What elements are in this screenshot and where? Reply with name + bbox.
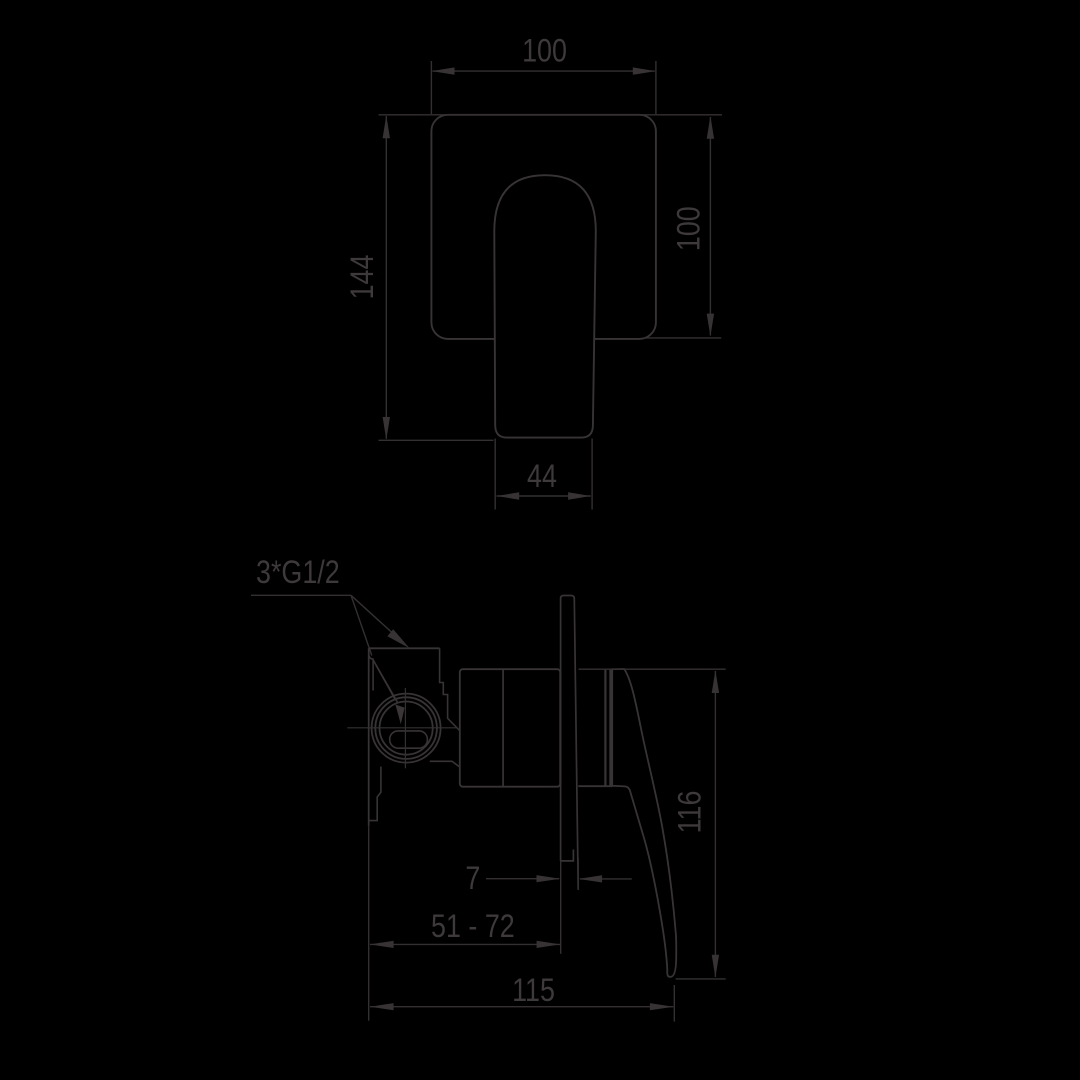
svg-text:144: 144 — [345, 255, 381, 300]
svg-text:115: 115 — [512, 973, 555, 1009]
svg-text:116: 116 — [672, 791, 708, 834]
svg-text:51 - 72: 51 - 72 — [431, 909, 515, 945]
svg-text:7: 7 — [465, 861, 480, 897]
svg-text:44: 44 — [527, 459, 557, 495]
svg-text:3*G1/2: 3*G1/2 — [256, 555, 340, 591]
svg-text:100: 100 — [671, 206, 707, 251]
svg-text:100: 100 — [522, 33, 567, 69]
